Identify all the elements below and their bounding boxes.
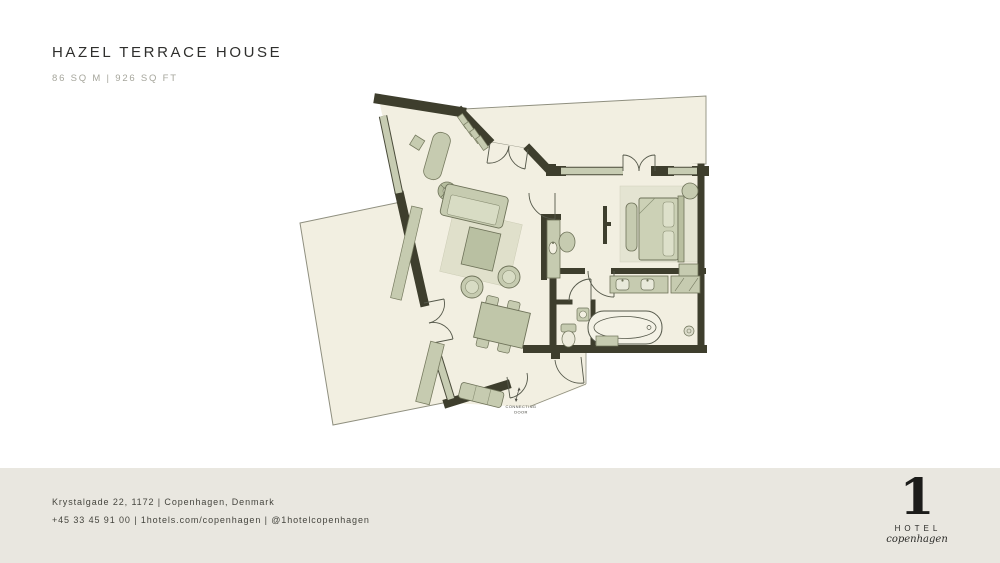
swivel-chair bbox=[461, 276, 483, 298]
toilet bbox=[561, 324, 576, 347]
swivel-chair bbox=[498, 266, 520, 288]
footer-contact-block: Krystalgade 22, 1172 | Copenhagen, Denma… bbox=[52, 496, 370, 532]
bath-stool bbox=[596, 336, 618, 346]
footer-address: Krystalgade 22, 1172 | Copenhagen, Denma… bbox=[52, 496, 370, 509]
powder-sink bbox=[577, 308, 589, 321]
floor-drain bbox=[684, 326, 694, 336]
vanity bbox=[610, 276, 668, 293]
round-side-table bbox=[682, 183, 698, 199]
hotel-logo: 1 HOTEL copenhagen bbox=[882, 472, 952, 545]
connecting-door-text-2: DOOR bbox=[514, 410, 528, 415]
footer-band: Krystalgade 22, 1172 | Copenhagen, Denma… bbox=[0, 468, 1000, 563]
floorplan-svg: CONNECTING DOOR bbox=[280, 85, 715, 435]
logo-hotel-text: HOTEL bbox=[884, 524, 952, 533]
nightstand bbox=[679, 264, 698, 277]
connecting-door-text-1: CONNECTING bbox=[506, 404, 537, 409]
area-subtitle: 86 SQ M | 926 SQ FT bbox=[52, 73, 282, 84]
header: HAZEL TERRACE HOUSE 86 SQ M | 926 SQ FT bbox=[52, 44, 282, 84]
footer-contact: +45 33 45 91 00 | 1hotels.com/copenhagen… bbox=[52, 514, 370, 527]
page-title: HAZEL TERRACE HOUSE bbox=[52, 44, 282, 61]
wardrobe bbox=[671, 276, 700, 293]
logo-city-text: copenhagen bbox=[882, 534, 952, 545]
logo-numeral-icon: 1 bbox=[882, 472, 952, 522]
page: HAZEL TERRACE HOUSE 86 SQ M | 926 SQ FT bbox=[0, 0, 1000, 563]
